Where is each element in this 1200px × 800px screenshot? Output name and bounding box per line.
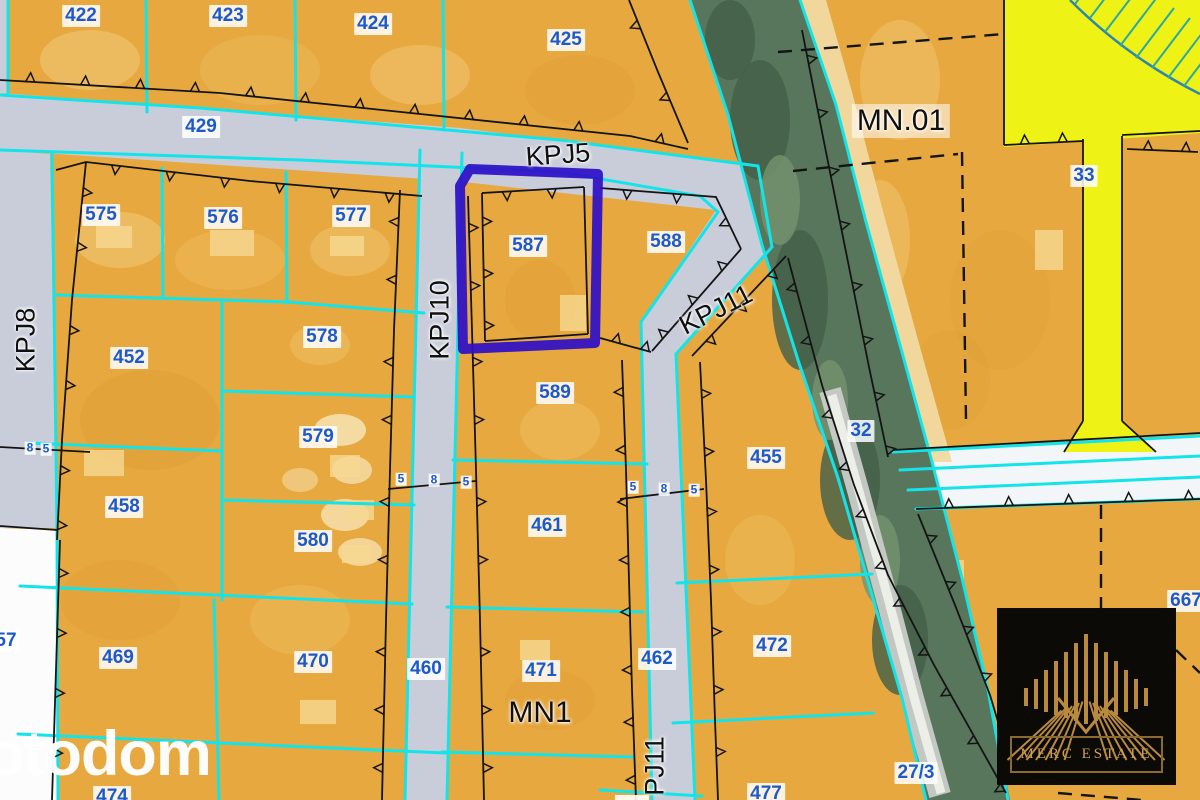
zoning-map-image: 4224234244254295755765775875884525785895… [0, 0, 1200, 800]
logo-text-frame: MERC ESTATE [1010, 736, 1163, 773]
otodom-watermark: otodom [0, 723, 211, 786]
merc-estate-logo: MERC ESTATE [997, 608, 1176, 785]
logo-text: MERC ESTATE [1020, 746, 1152, 763]
